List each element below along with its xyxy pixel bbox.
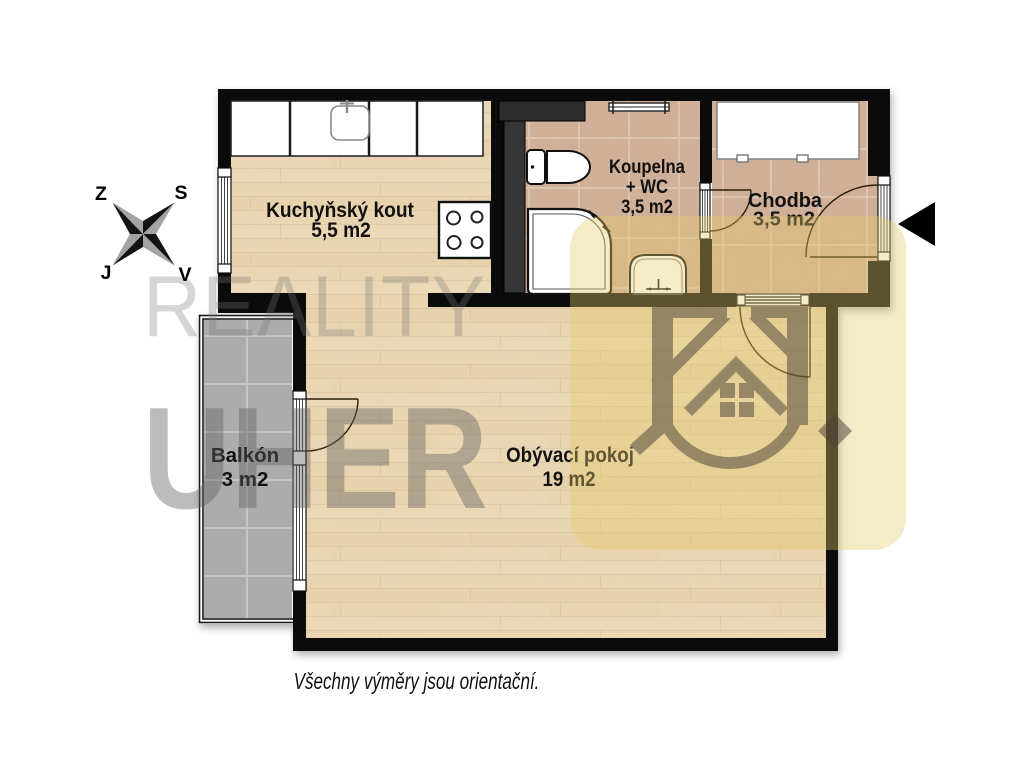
svg-text:+ WC: + WC [626, 176, 668, 197]
svg-text:V: V [178, 264, 191, 286]
svg-text:Všechny výměry jsou orientační: Všechny výměry jsou orientační. [294, 670, 540, 695]
svg-text:5,5 m2: 5,5 m2 [311, 219, 371, 242]
svg-text:J: J [101, 262, 112, 284]
svg-text:3,5 m2: 3,5 m2 [621, 196, 673, 217]
svg-text:Koupelna: Koupelna [609, 156, 686, 177]
svg-text:UHER: UHER [143, 378, 488, 539]
svg-text:S: S [174, 182, 187, 204]
svg-text:REALITY: REALITY [143, 258, 486, 355]
svg-text:Z: Z [95, 183, 107, 205]
